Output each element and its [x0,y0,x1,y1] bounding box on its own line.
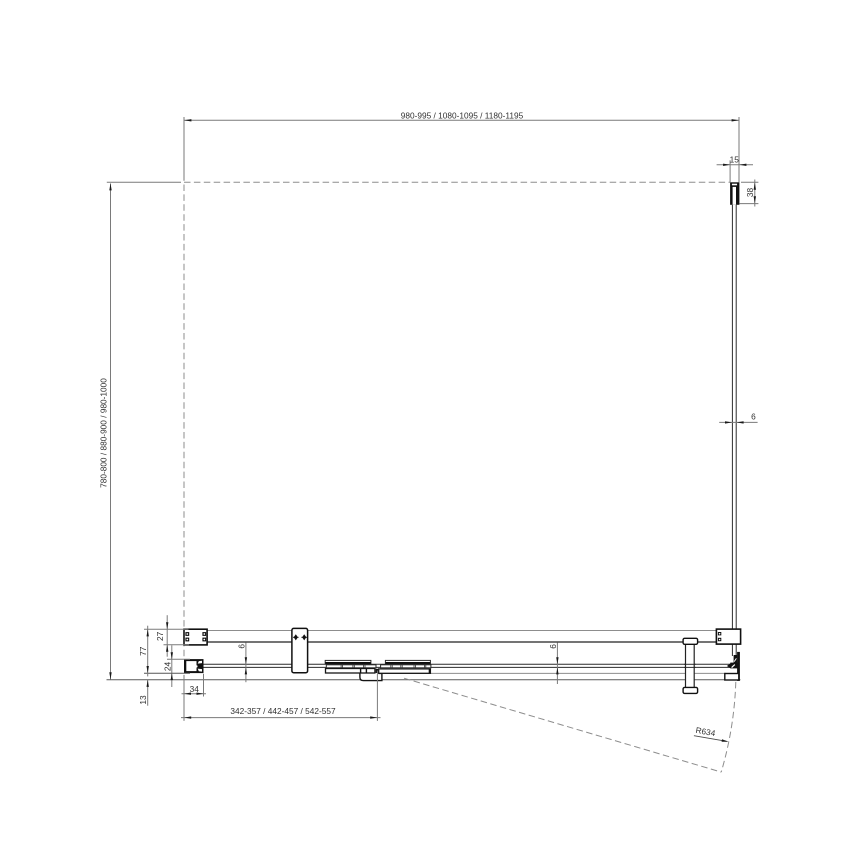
svg-text:38: 38 [745,188,755,198]
svg-text:15: 15 [730,155,740,165]
svg-text:13: 13 [138,695,148,705]
svg-text:342-357 / 442-457 / 542-557: 342-357 / 442-457 / 542-557 [230,706,336,716]
svg-text:6: 6 [548,644,558,649]
svg-text:780-800 / 880-900 / 980-1000: 780-800 / 880-900 / 980-1000 [99,378,109,488]
svg-text:77: 77 [138,646,148,656]
svg-text:6: 6 [751,411,756,421]
svg-text:27: 27 [155,631,165,641]
svg-text:6: 6 [236,644,246,649]
svg-text:980-995 / 1080-1095 / 1180-119: 980-995 / 1080-1095 / 1180-1195 [401,111,524,121]
svg-text:34: 34 [190,684,200,694]
svg-text:24: 24 [162,662,172,672]
